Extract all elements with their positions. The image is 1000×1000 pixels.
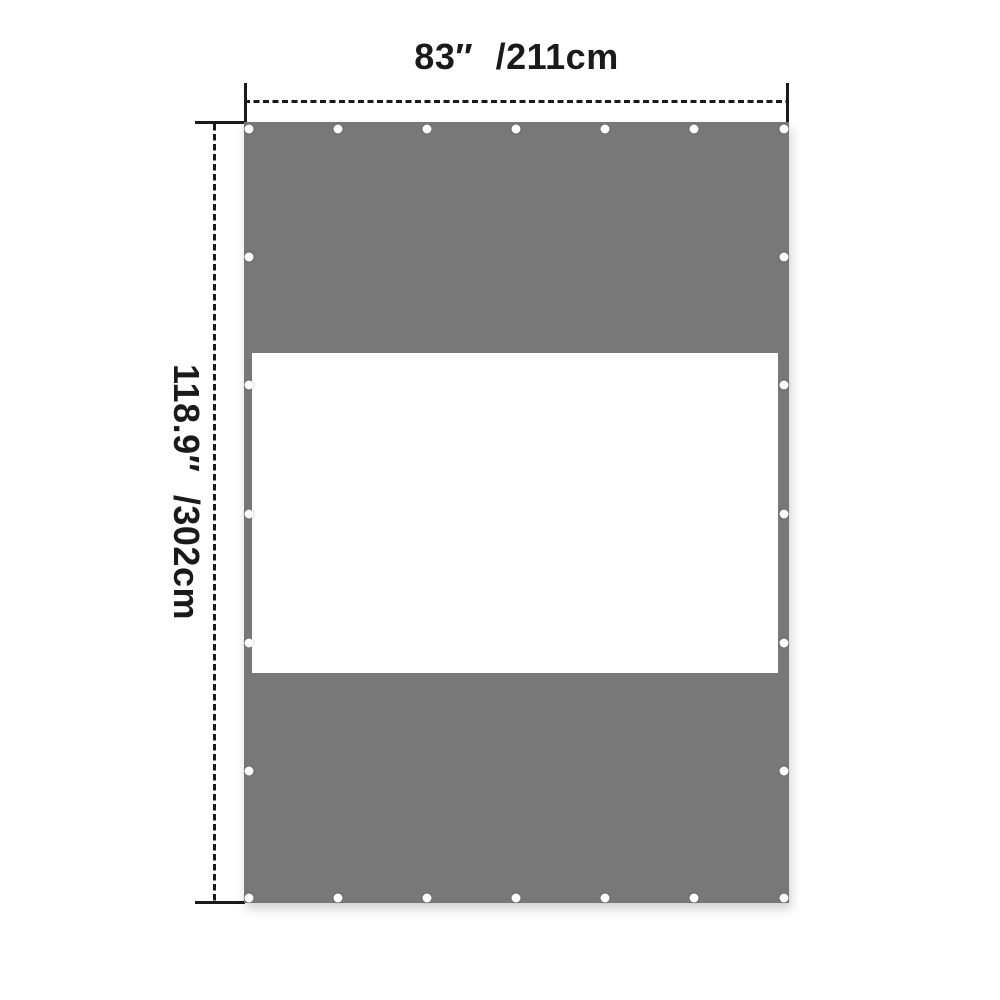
height-dimension-label: 118.9″ /302cm — [165, 364, 207, 620]
grommet — [779, 893, 788, 902]
grommet — [244, 125, 253, 134]
width-dimension-dashed-line — [244, 100, 789, 103]
grommet — [511, 125, 520, 134]
height-dimension-bottom-tick — [195, 901, 245, 904]
grommet — [244, 510, 253, 519]
grommet — [244, 253, 253, 262]
height-dimension-top-tick — [195, 121, 245, 124]
width-dimension-right-tick — [786, 83, 789, 123]
grommet — [244, 638, 253, 647]
grommet — [244, 767, 253, 776]
grommet — [511, 893, 520, 902]
width-dimension-label: 83″ /211cm — [244, 36, 789, 78]
tarp-panel — [244, 122, 789, 903]
grommet — [690, 125, 699, 134]
grommet — [333, 125, 342, 134]
grommet — [423, 125, 432, 134]
diagram-canvas: 83″ /211cm 118.9″ /302cm — [0, 0, 1000, 1000]
grommet — [244, 381, 253, 390]
grommet — [779, 381, 788, 390]
grommet — [779, 253, 788, 262]
grommet — [600, 125, 609, 134]
grommet — [600, 893, 609, 902]
grommet — [423, 893, 432, 902]
grommet — [244, 893, 253, 902]
grommet — [779, 767, 788, 776]
tarp-window — [252, 353, 778, 673]
grommet — [333, 893, 342, 902]
grommet — [779, 638, 788, 647]
grommet — [690, 893, 699, 902]
height-dimension-dashed-line — [213, 124, 216, 902]
grommet — [779, 510, 788, 519]
grommet — [779, 125, 788, 134]
width-dimension-left-tick — [244, 83, 247, 123]
